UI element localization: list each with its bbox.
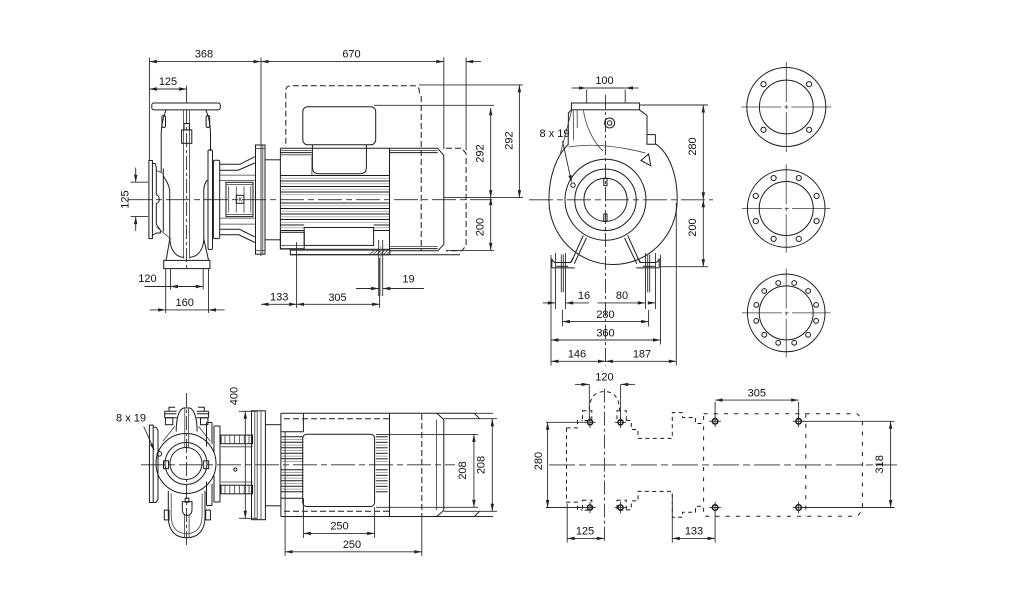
svg-text:8 x 19: 8 x 19 xyxy=(116,413,146,425)
svg-text:120: 120 xyxy=(595,372,613,384)
svg-text:318: 318 xyxy=(874,455,886,473)
svg-text:200: 200 xyxy=(687,218,699,236)
svg-text:360: 360 xyxy=(596,327,614,339)
svg-text:280: 280 xyxy=(533,452,545,470)
svg-text:208: 208 xyxy=(457,461,469,479)
svg-text:K: K xyxy=(238,198,242,204)
svg-text:250: 250 xyxy=(330,520,348,532)
svg-text:125: 125 xyxy=(576,525,594,537)
svg-text:280: 280 xyxy=(596,309,614,321)
svg-text:670: 670 xyxy=(342,49,360,61)
svg-text:250: 250 xyxy=(343,539,361,551)
svg-text:125: 125 xyxy=(159,76,177,88)
svg-text:16: 16 xyxy=(578,290,590,302)
svg-text:146: 146 xyxy=(568,349,586,361)
svg-text:280: 280 xyxy=(687,137,699,155)
svg-text:368: 368 xyxy=(195,49,213,61)
svg-text:292: 292 xyxy=(504,131,516,149)
svg-text:160: 160 xyxy=(176,297,194,309)
svg-text:200: 200 xyxy=(475,218,487,236)
svg-text:133: 133 xyxy=(685,525,703,537)
svg-text:208: 208 xyxy=(476,456,488,474)
svg-text:80: 80 xyxy=(616,290,628,302)
svg-text:8 x 19: 8 x 19 xyxy=(540,128,570,140)
svg-text:120: 120 xyxy=(138,273,156,285)
svg-text:305: 305 xyxy=(748,387,766,399)
svg-text:305: 305 xyxy=(328,292,346,304)
svg-text:400: 400 xyxy=(229,387,241,405)
svg-text:133: 133 xyxy=(270,291,288,303)
svg-text:187: 187 xyxy=(633,349,651,361)
svg-text:125: 125 xyxy=(119,190,131,208)
svg-text:292: 292 xyxy=(475,144,487,162)
svg-text:19: 19 xyxy=(402,274,414,286)
svg-text:100: 100 xyxy=(595,75,613,87)
